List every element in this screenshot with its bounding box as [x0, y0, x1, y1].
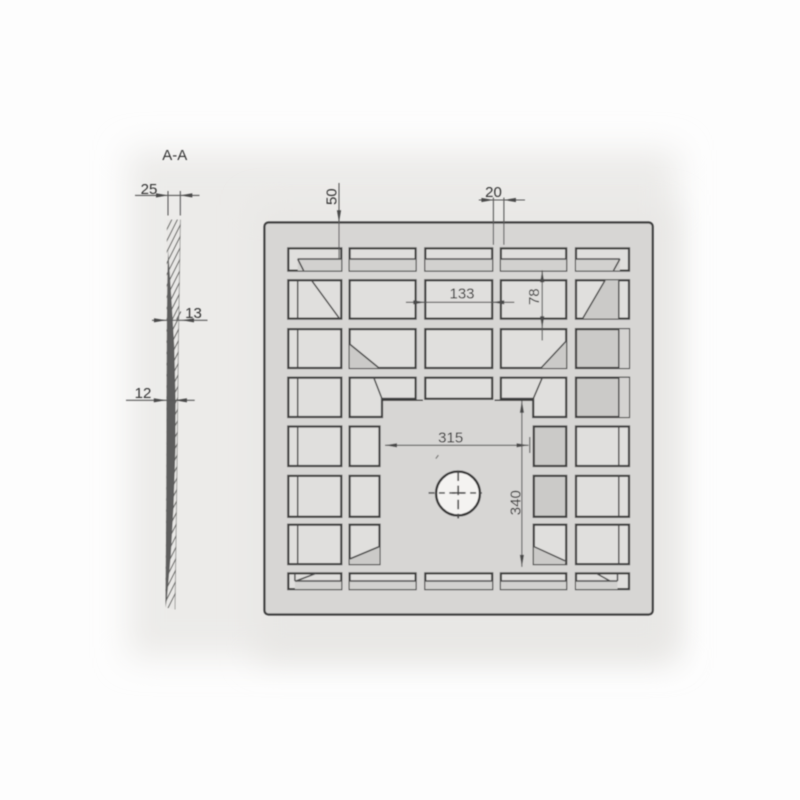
- svg-text:A-A: A-A: [162, 147, 187, 164]
- svg-text:12: 12: [135, 385, 152, 402]
- svg-text:133: 133: [449, 286, 474, 303]
- svg-text:50: 50: [324, 188, 341, 205]
- svg-text:315: 315: [438, 429, 463, 446]
- svg-text:78: 78: [526, 288, 543, 305]
